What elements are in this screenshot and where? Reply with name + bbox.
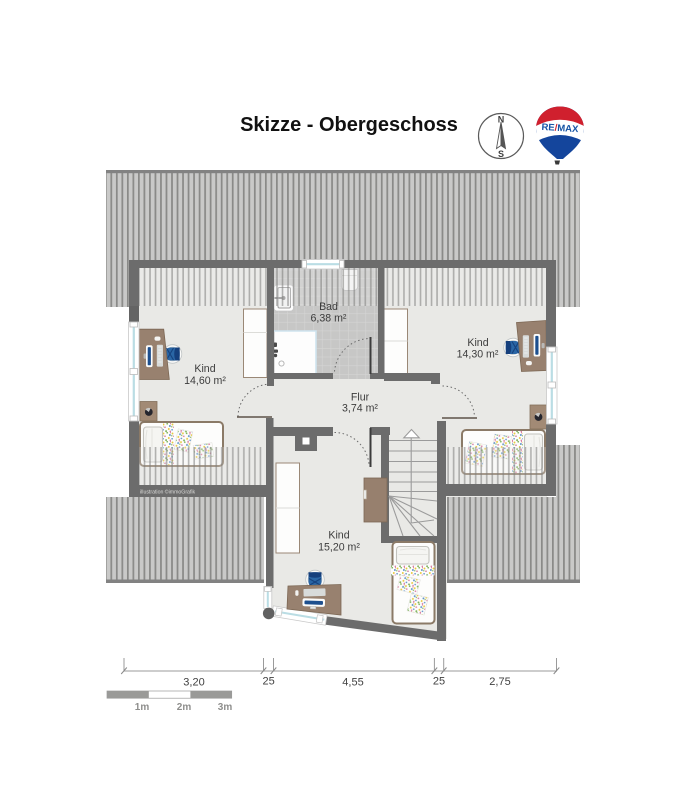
- svg-text:Skizze - Obergeschoss: Skizze - Obergeschoss: [240, 114, 458, 136]
- svg-text:RE/MAX: RE/MAX: [541, 122, 579, 135]
- svg-text:14,30 m²: 14,30 m²: [457, 349, 499, 361]
- svg-text:S: S: [498, 149, 504, 159]
- svg-text:N: N: [498, 115, 505, 125]
- svg-text:1m: 1m: [135, 702, 150, 713]
- svg-text:Kind: Kind: [467, 337, 488, 349]
- svg-text:6,38 m²: 6,38 m²: [311, 313, 347, 325]
- svg-text:Bad: Bad: [319, 301, 338, 313]
- svg-text:25: 25: [433, 676, 445, 688]
- svg-text:3,74 m²: 3,74 m²: [342, 403, 378, 415]
- svg-text:Kind: Kind: [328, 530, 349, 542]
- svg-text:25: 25: [262, 676, 274, 688]
- svg-text:3m: 3m: [218, 702, 233, 713]
- svg-text:illustration ©immoGrafik: illustration ©immoGrafik: [140, 489, 196, 496]
- svg-text:4,55: 4,55: [342, 677, 363, 689]
- svg-text:2m: 2m: [177, 702, 192, 713]
- svg-text:14,60 m²: 14,60 m²: [184, 375, 226, 387]
- svg-text:Kind: Kind: [194, 363, 215, 375]
- svg-text:2,75: 2,75: [489, 676, 510, 688]
- svg-text:3,20: 3,20: [183, 677, 204, 689]
- svg-text:15,20 m²: 15,20 m²: [318, 542, 360, 554]
